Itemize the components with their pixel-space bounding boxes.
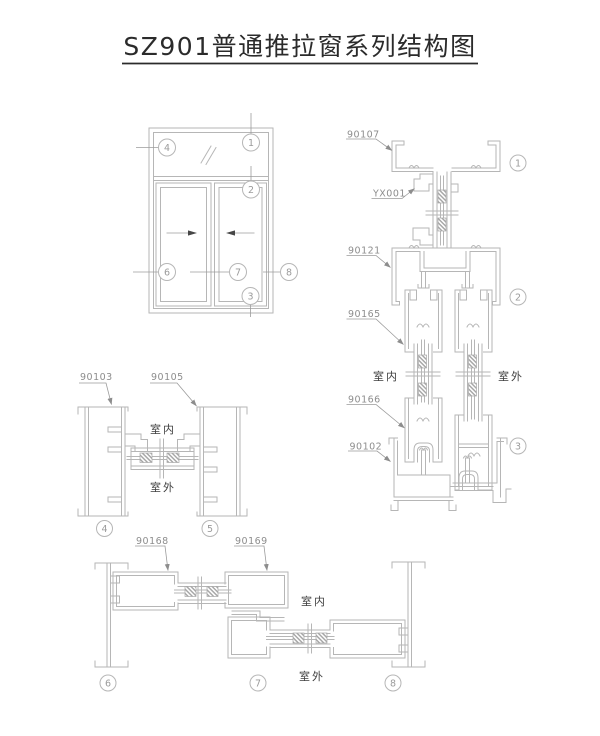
vertical-section-callouts: 1 2 3 bbox=[510, 155, 526, 454]
part-label-90169: 90169 bbox=[235, 536, 268, 547]
vertical-section-leaders bbox=[346, 139, 415, 462]
right-frame-jamb bbox=[392, 562, 425, 667]
slide-direction-arrow-left bbox=[226, 230, 235, 235]
callout-number-6-section: 6 bbox=[105, 679, 111, 690]
part-label-90107: 90107 bbox=[347, 130, 380, 141]
structure-diagram: SZ901普通推拉窗系列结构图 bbox=[0, 0, 600, 736]
profile-90102 bbox=[389, 438, 511, 511]
glazing-gasket bbox=[167, 453, 179, 463]
window-elevation-view: 4 1 2 6 7 8 3 bbox=[133, 113, 298, 317]
title-block: SZ901普通推拉窗系列结构图 bbox=[122, 32, 478, 64]
jamb-section-leaders bbox=[79, 383, 197, 406]
page-title: SZ901普通推拉窗系列结构图 bbox=[123, 32, 476, 61]
profile-90169 bbox=[225, 572, 288, 658]
outdoor-label-vertical-section: 室外 bbox=[498, 369, 524, 383]
glass-symbol bbox=[201, 146, 211, 163]
callout-number-1-section: 1 bbox=[515, 159, 521, 170]
callout-number-2-section: 2 bbox=[515, 293, 521, 304]
vertical-section-view: 90107 YX001 90121 90165 90166 90102 室内 室… bbox=[346, 130, 526, 511]
callout-number-3-section: 3 bbox=[515, 442, 521, 453]
glass-symbol bbox=[206, 148, 216, 165]
indoor-label-bottom-section: 室内 bbox=[301, 594, 327, 608]
callout-number-4: 4 bbox=[164, 143, 170, 154]
profile-90107 bbox=[392, 141, 433, 172]
profile-90168 bbox=[113, 572, 178, 610]
indoor-label-vertical-section: 室内 bbox=[373, 369, 399, 383]
left-frame-jamb bbox=[95, 563, 128, 667]
profile-90165 bbox=[405, 290, 492, 352]
horizontal-section-jambs: 90103 90105 室内 室外 4 5 bbox=[78, 372, 247, 537]
callout-number-2: 2 bbox=[248, 185, 254, 196]
callout-number-6: 6 bbox=[164, 268, 170, 279]
callout-number-7: 7 bbox=[235, 268, 241, 279]
part-label-90121: 90121 bbox=[348, 246, 381, 257]
glazing-gasket bbox=[140, 453, 152, 463]
callout-number-4-section: 4 bbox=[101, 524, 107, 535]
elevation-callouts: 4 1 2 6 7 8 3 bbox=[159, 134, 298, 305]
profile-90105 bbox=[178, 407, 248, 516]
callout-number-8-section: 8 bbox=[390, 679, 396, 690]
profile-yx001 bbox=[414, 174, 433, 191]
part-label-yx001: YX001 bbox=[372, 189, 406, 200]
bottom-section-leaders bbox=[135, 546, 267, 571]
callout-number-1: 1 bbox=[248, 138, 254, 149]
outdoor-label-jamb-section: 室外 bbox=[150, 480, 176, 494]
bottom-section-callouts: 6 7 8 bbox=[100, 675, 401, 691]
horizontal-section-bottom: 90168 90169 室内 室外 6 7 8 bbox=[95, 536, 425, 691]
callout-number-5-section: 5 bbox=[207, 524, 213, 535]
callout-number-7-section: 7 bbox=[255, 679, 261, 690]
part-label-90168: 90168 bbox=[136, 536, 169, 547]
exterior-sash-box bbox=[330, 620, 405, 658]
slide-direction-arrow-right bbox=[188, 230, 197, 235]
drawing-sheet: SZ901普通推拉窗系列结构图 bbox=[0, 0, 600, 736]
outdoor-label-bottom-section: 室外 bbox=[299, 669, 325, 683]
part-label-90105: 90105 bbox=[151, 372, 184, 383]
jamb-section-callouts: 4 5 bbox=[97, 521, 219, 537]
part-label-90165: 90165 bbox=[348, 309, 381, 320]
callout-number-8: 8 bbox=[286, 268, 292, 279]
part-label-90166: 90166 bbox=[348, 395, 381, 406]
part-label-90103: 90103 bbox=[80, 372, 113, 383]
part-label-90102: 90102 bbox=[350, 442, 383, 453]
callout-number-3: 3 bbox=[247, 292, 253, 303]
profile-90103 bbox=[78, 407, 148, 516]
indoor-label-jamb-section: 室内 bbox=[150, 422, 176, 436]
